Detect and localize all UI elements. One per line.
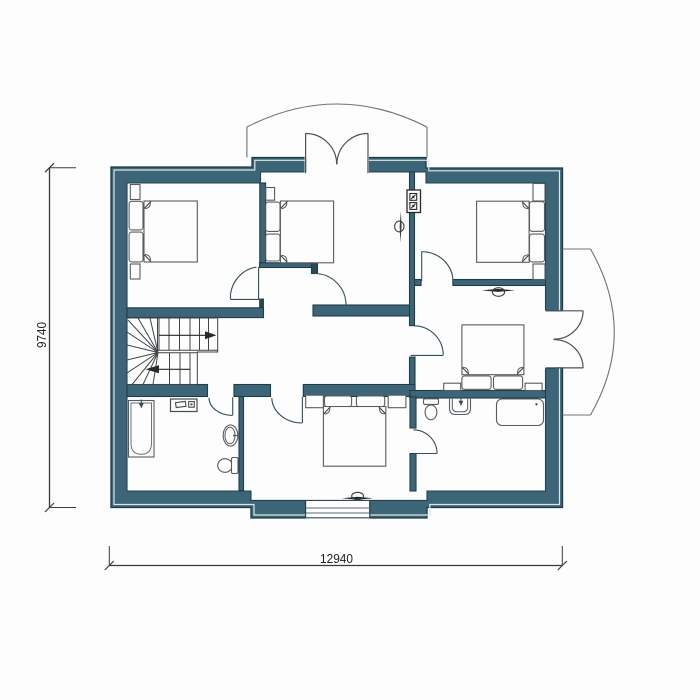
svg-text:9740: 9740 bbox=[34, 322, 49, 348]
svg-text:12940: 12940 bbox=[320, 551, 353, 566]
